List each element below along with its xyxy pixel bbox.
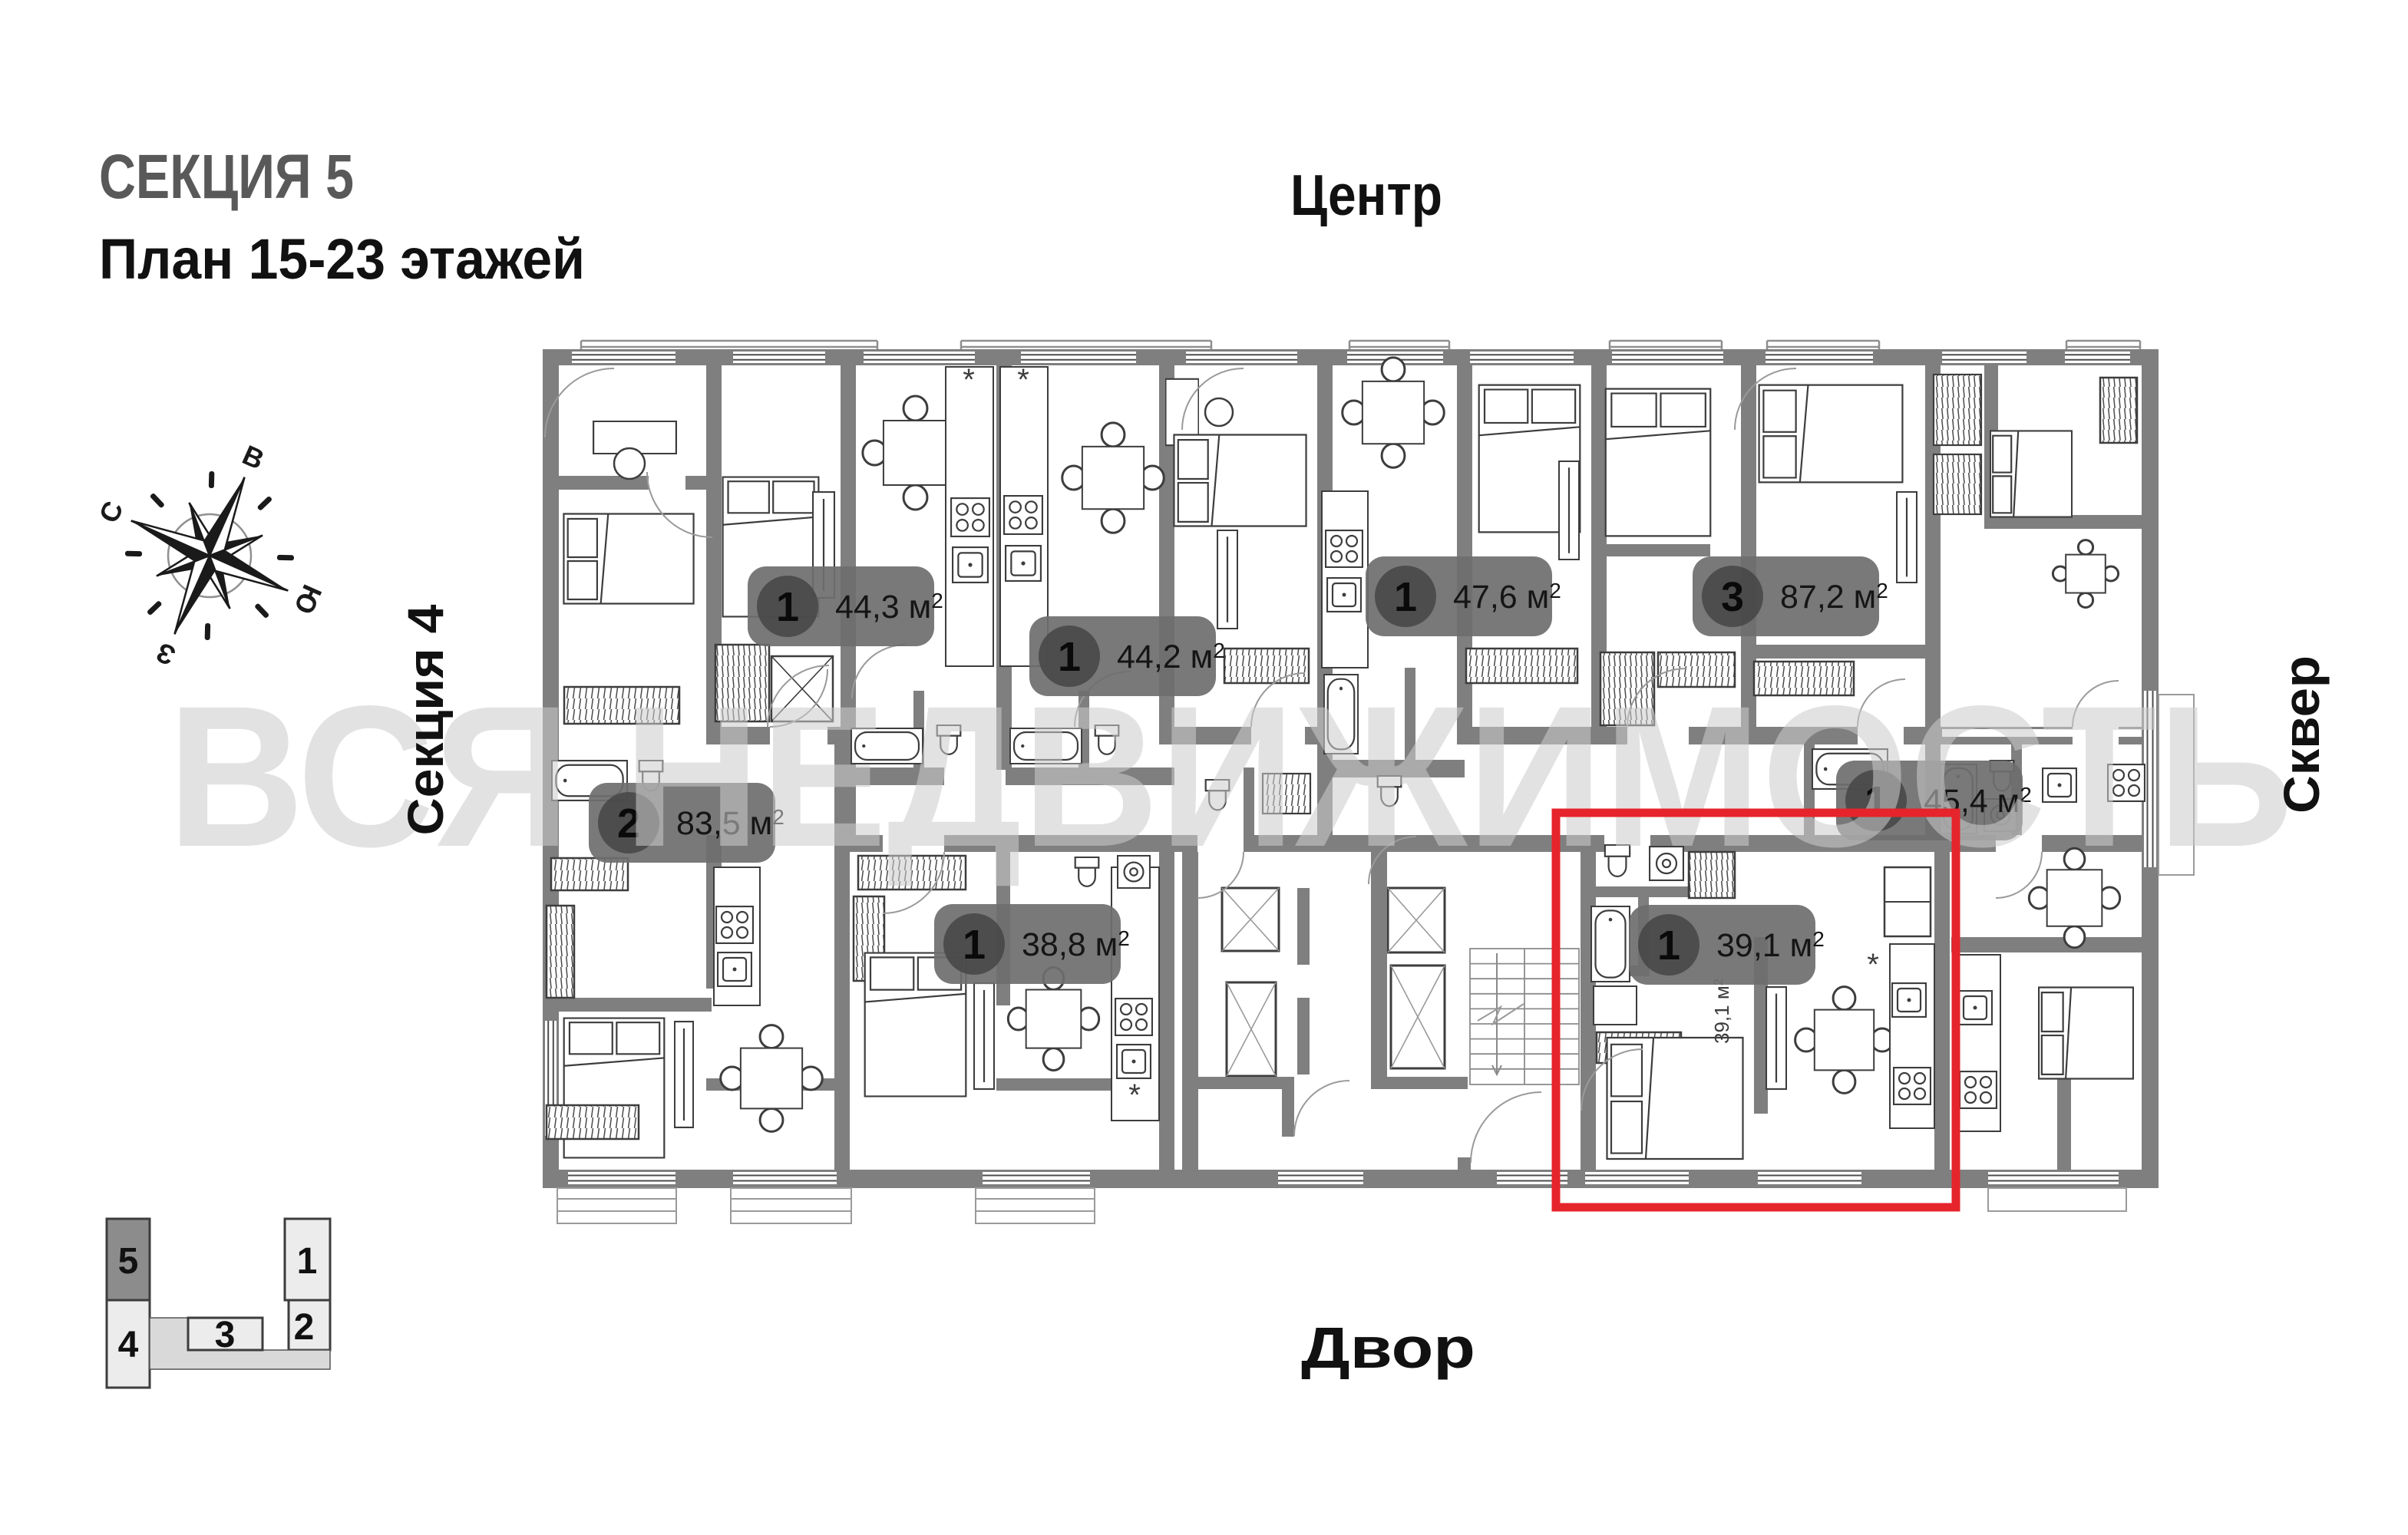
svg-text:1: 1 (297, 1241, 318, 1282)
svg-text:1: 1 (1394, 574, 1417, 620)
svg-text:*: * (1017, 363, 1029, 397)
svg-text:Сквер: Сквер (2273, 655, 2330, 814)
svg-text:4: 4 (118, 1325, 139, 1365)
svg-text:План 15-23 этажей: План 15-23 этажей (99, 227, 585, 291)
svg-text:38,8 м2: 38,8 м2 (1022, 926, 1130, 963)
svg-text:1: 1 (1657, 923, 1680, 969)
svg-text:1: 1 (776, 584, 799, 630)
svg-text:*: * (1867, 948, 1879, 982)
svg-text:*: * (963, 363, 975, 397)
svg-text:Секция 4: Секция 4 (397, 604, 454, 835)
svg-text:39,1 м2: 39,1 м2 (1710, 979, 1733, 1044)
svg-text:Двор: Двор (1301, 1315, 1475, 1380)
svg-text:ВСЯ НЕДВИЖИМОСТЬ: ВСЯ НЕДВИЖИМОСТЬ (167, 664, 2294, 889)
svg-text:3: 3 (1721, 574, 1744, 620)
svg-text:СЕКЦИЯ 5: СЕКЦИЯ 5 (99, 142, 354, 212)
svg-text:39,1 м2: 39,1 м2 (1716, 927, 1825, 964)
svg-text:87,2 м2: 87,2 м2 (1780, 579, 1888, 616)
svg-text:47,6 м2: 47,6 м2 (1453, 579, 1561, 616)
svg-text:44,3 м2: 44,3 м2 (835, 589, 943, 626)
svg-text:1: 1 (963, 922, 986, 968)
svg-text:5: 5 (118, 1241, 139, 1282)
svg-text:*: * (1128, 1078, 1141, 1112)
svg-text:Центр: Центр (1290, 163, 1442, 227)
svg-text:3: 3 (215, 1315, 236, 1355)
svg-text:2: 2 (294, 1307, 315, 1348)
